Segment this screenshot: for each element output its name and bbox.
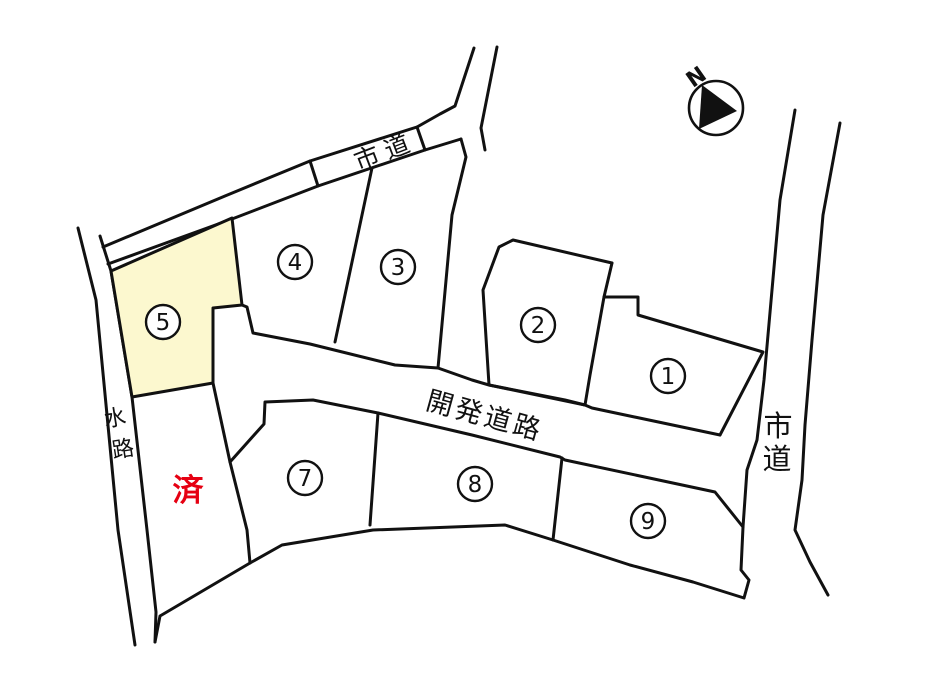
- lot-marker-4: 4: [278, 245, 312, 279]
- lot3-lot4-boundary: [335, 168, 372, 342]
- sold-lot-label: 済: [173, 473, 205, 509]
- east-road-right-edge: [795, 123, 840, 595]
- lot-number-text: 3: [391, 255, 406, 281]
- lot5-polygon: [111, 218, 242, 397]
- lot-marker-7: 7: [288, 461, 322, 495]
- north-compass: N: [682, 62, 743, 135]
- lot3-right-boundary: [438, 139, 466, 368]
- city-road-top-label: 市道: [350, 126, 420, 176]
- lot-number-text: 4: [288, 250, 303, 276]
- svg-text:水: 水: [102, 405, 128, 433]
- lot-marker-2: 2: [521, 308, 555, 342]
- waterway-label: 水 路: [102, 404, 136, 464]
- city-road-right-label: 市 道: [762, 409, 792, 476]
- lot8-lot9-boundary: [553, 458, 562, 540]
- lot7-lot8-boundary: [370, 413, 378, 525]
- lot-marker-9: 9: [631, 504, 665, 538]
- lot-number-text: 9: [641, 509, 656, 535]
- lot-marker-1: 1: [651, 359, 685, 393]
- lot-number-text: 2: [531, 313, 546, 339]
- compass-needle-icon: [699, 85, 737, 129]
- lot-number-text: 1: [661, 364, 676, 390]
- lot-marker-8: 8: [458, 467, 492, 501]
- road-section-tick-left: [310, 161, 318, 186]
- city-road-top-upper-edge: [103, 48, 474, 247]
- lot-number-text: 5: [156, 310, 171, 336]
- site-south-boundary: [155, 525, 749, 642]
- lot1-lot2-boundary: [585, 263, 612, 405]
- svg-text:路: 路: [110, 436, 136, 464]
- north-road-right-edge: [481, 47, 497, 150]
- lot-marker-3: 3: [381, 250, 415, 284]
- svg-text:道: 道: [762, 442, 791, 476]
- lot-number-text: 7: [298, 466, 313, 492]
- compass-north-label: N: [682, 62, 711, 93]
- svg-text:市: 市: [763, 409, 792, 443]
- lot-map: N 市道 開発道路 市 道 水 路 済 1 2 3 4 5 7 8: [0, 0, 947, 680]
- lot-marker-5: 5: [146, 305, 180, 339]
- lot-number-text: 8: [468, 472, 483, 498]
- road-section-tick-right: [417, 127, 425, 150]
- sold-lot-right-boundary: [213, 383, 250, 563]
